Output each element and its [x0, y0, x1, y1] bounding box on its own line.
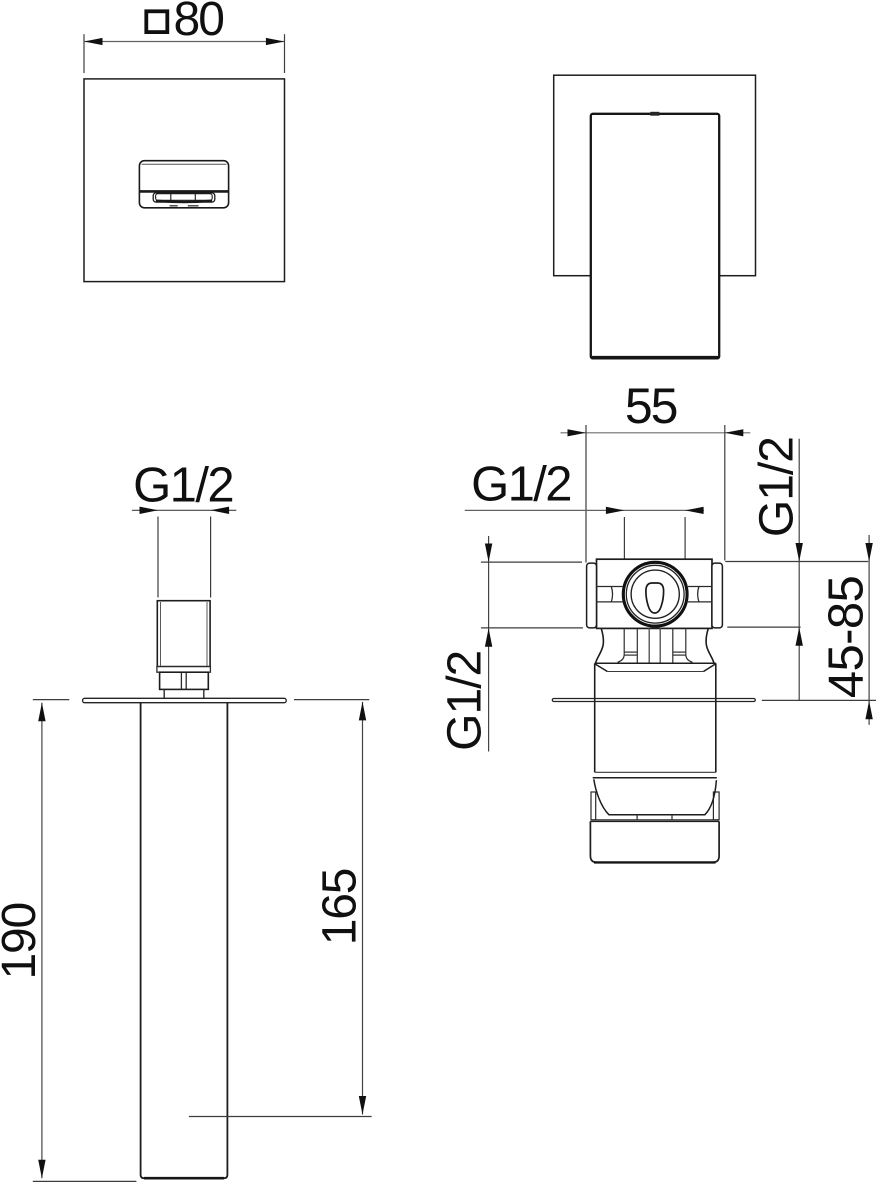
svg-text:55: 55 [625, 378, 677, 434]
svg-text:165: 165 [313, 869, 366, 946]
svg-text:G1/2: G1/2 [438, 651, 491, 751]
svg-text:190: 190 [0, 903, 46, 980]
svg-text:G1/2: G1/2 [133, 459, 233, 513]
svg-text:80: 80 [174, 0, 224, 46]
svg-text:G1/2: G1/2 [751, 437, 804, 537]
svg-text:45-85: 45-85 [819, 576, 873, 698]
svg-text:G1/2: G1/2 [471, 458, 571, 512]
